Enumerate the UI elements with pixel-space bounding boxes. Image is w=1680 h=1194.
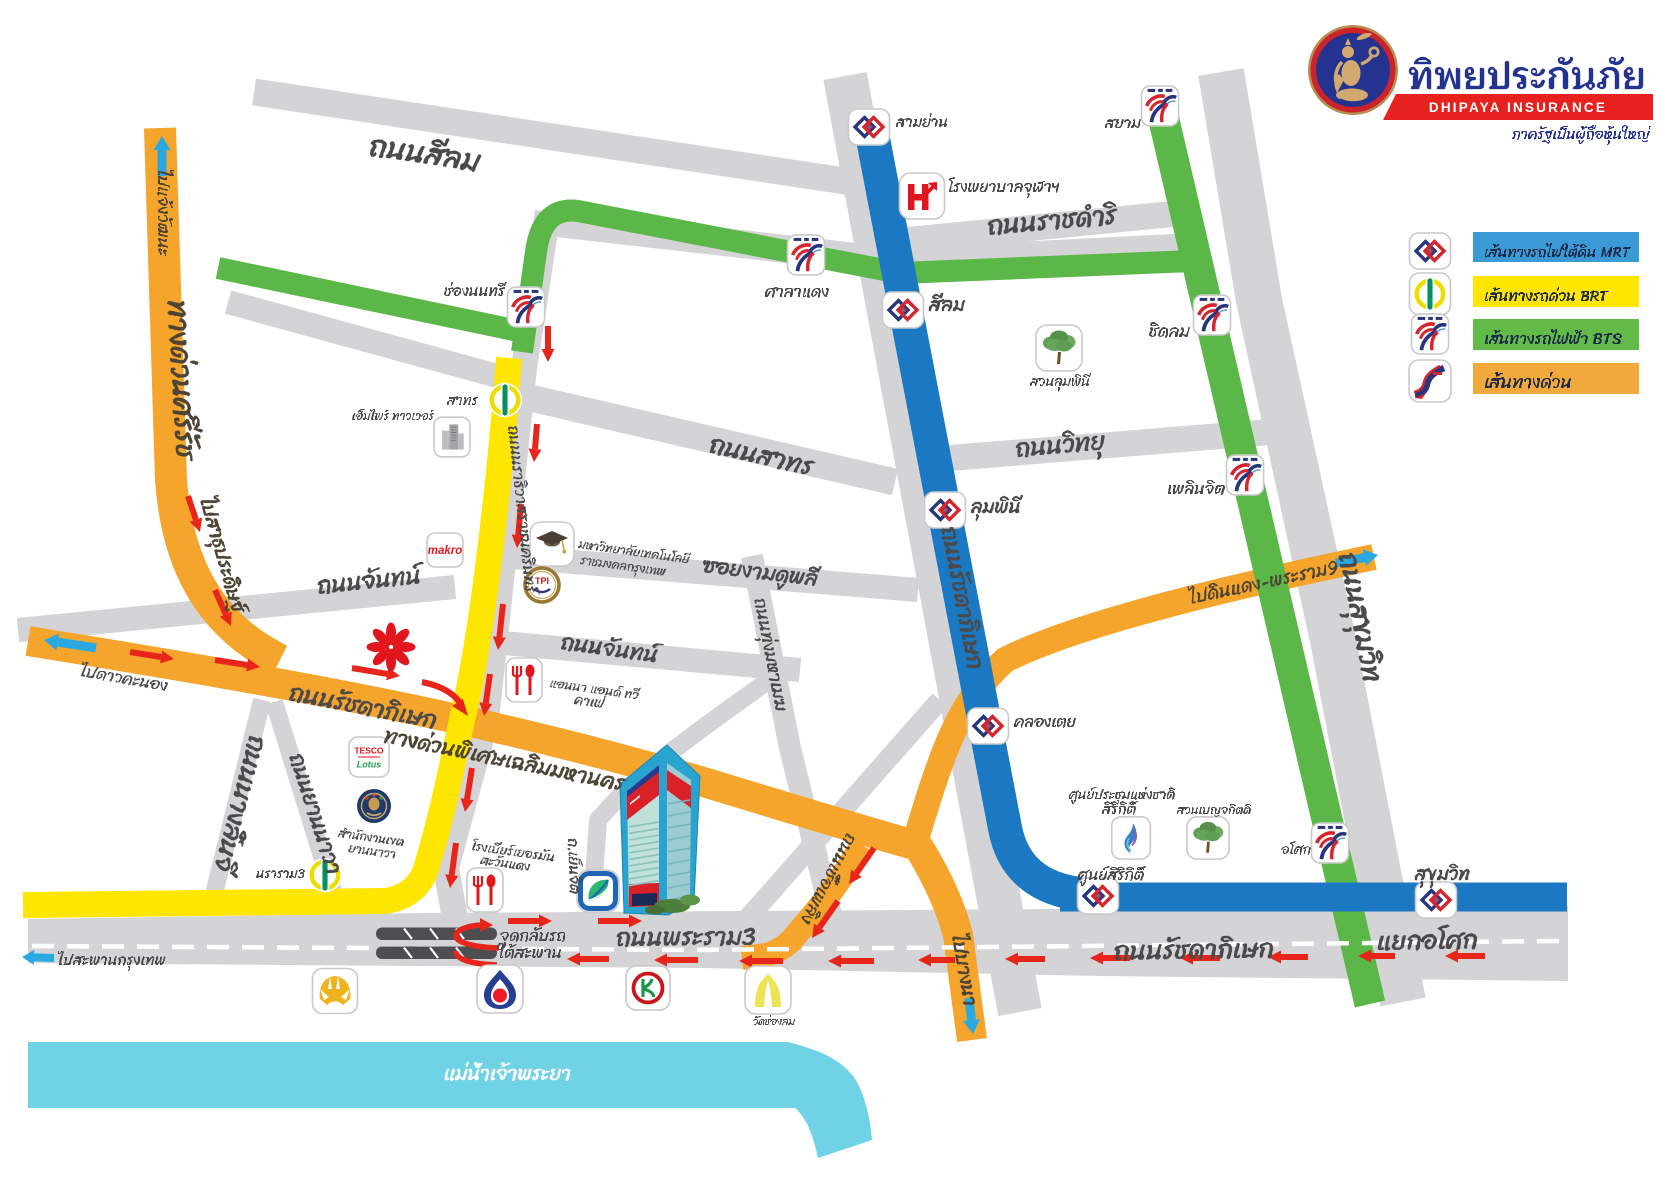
svg-text:TPI: TPI (535, 576, 549, 586)
svg-text:TESCO: TESCO (354, 746, 384, 756)
svg-text:DHIPAYA INSURANCE: DHIPAYA INSURANCE (1429, 100, 1607, 115)
svg-text:makro: makro (428, 545, 463, 557)
svg-text:Lotus: Lotus (357, 760, 382, 770)
